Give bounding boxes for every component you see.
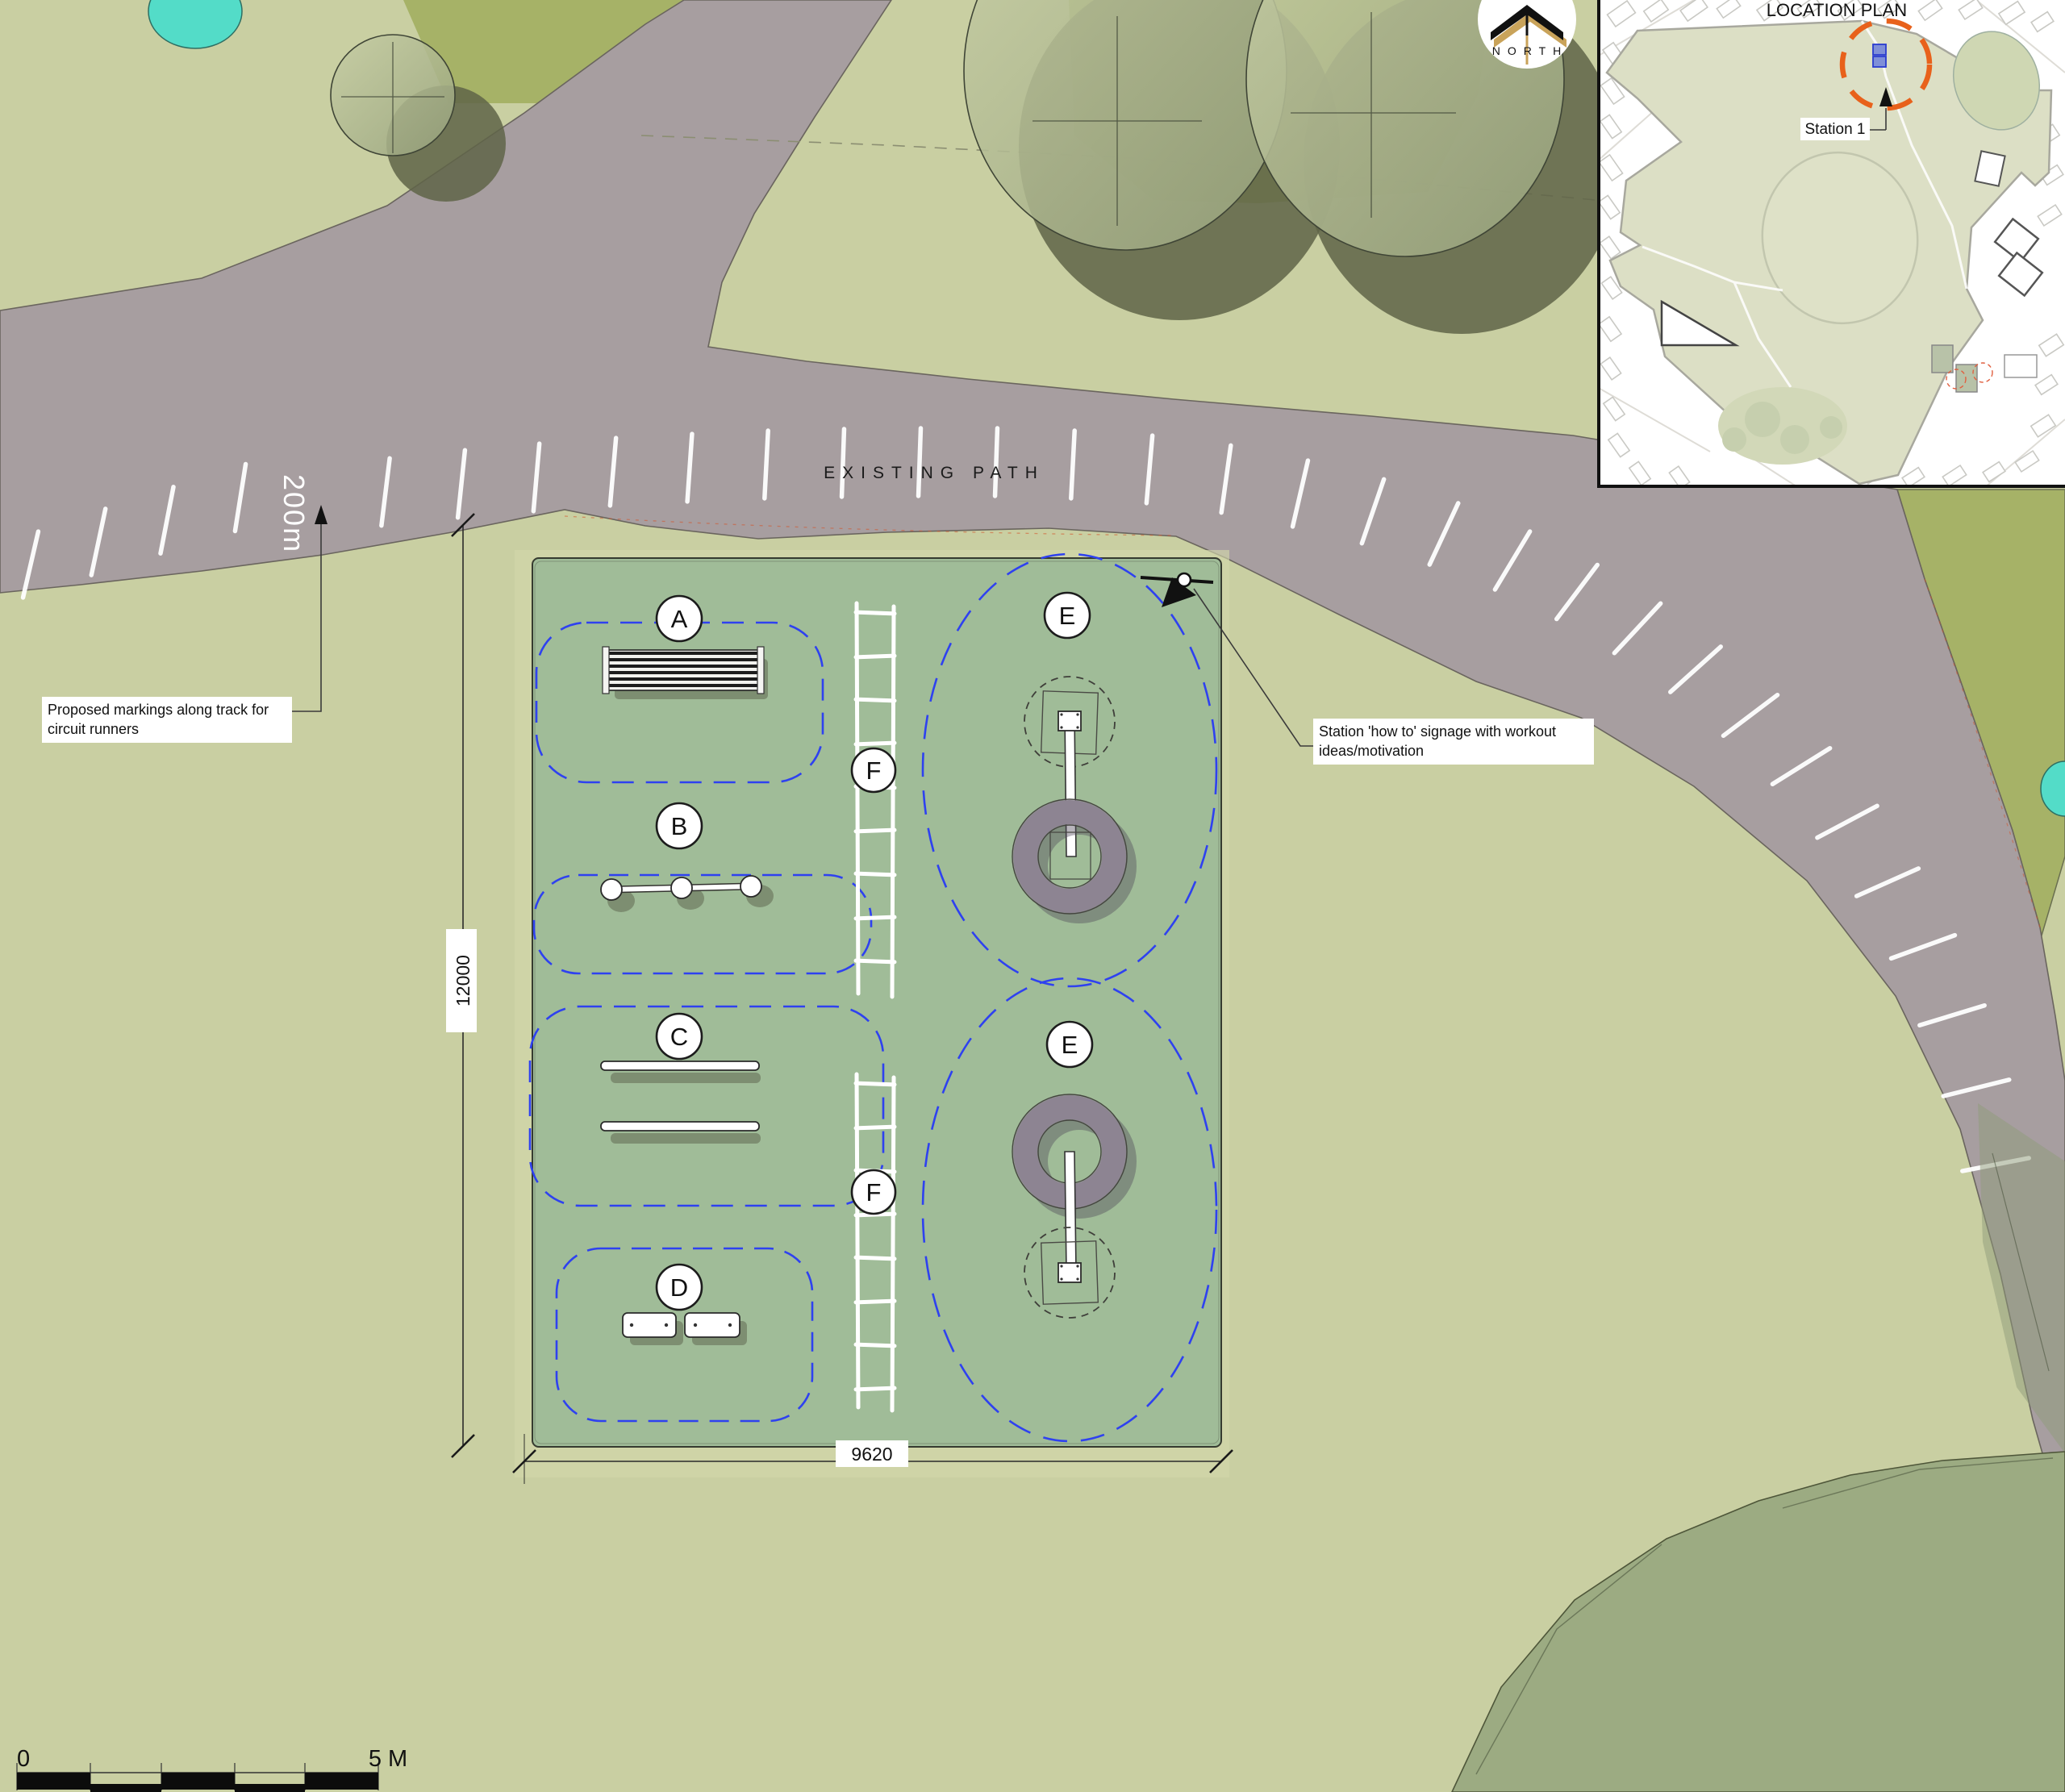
existing-path-label: EXISTING PATH <box>824 464 1045 482</box>
svg-text:E: E <box>1062 1031 1078 1059</box>
station-label-c: C <box>657 1014 702 1059</box>
location-plan-title: LOCATION PLAN <box>1767 0 1907 20</box>
station-label-d: D <box>657 1265 702 1310</box>
dimension-horizontal: 9620 <box>851 1444 892 1465</box>
station-label-a: A <box>657 596 702 641</box>
station-label-f-upper: F <box>852 748 895 792</box>
svg-text:F: F <box>866 1178 882 1206</box>
annotation-track-markings: Proposed markings along track for circui… <box>42 697 292 743</box>
track-distance-label: 200m <box>277 474 311 553</box>
scale-max-label: 5 M <box>369 1746 407 1772</box>
station-label-e-upper: E <box>1045 593 1090 638</box>
north-label: NORTH <box>1492 44 1569 57</box>
inset-station-label: Station 1 <box>1805 121 1866 138</box>
svg-text:C: C <box>670 1023 688 1051</box>
svg-text:F: F <box>866 756 882 785</box>
site-plan-drawing: EXISTING PATH 200m <box>0 0 2065 1792</box>
station-label-b: B <box>657 803 702 848</box>
location-plan-inset: Station 1 LOCATION PLAN <box>1597 0 2065 489</box>
station-a-equipment <box>603 647 768 699</box>
site-plan-sheet: EXISTING PATH 200m <box>0 0 2065 1792</box>
dimension-vertical: 12000 <box>453 955 473 1006</box>
svg-text:E: E <box>1059 602 1076 630</box>
station-label-f-lower: F <box>852 1170 895 1214</box>
svg-text:A: A <box>671 605 688 633</box>
station-label-e-lower: E <box>1047 1022 1092 1067</box>
svg-text:B: B <box>671 812 688 840</box>
annotation-signage: Station 'how to' signage with workout id… <box>1313 719 1594 765</box>
scale-zero-label: 0 <box>17 1746 30 1772</box>
svg-text:D: D <box>670 1273 688 1302</box>
